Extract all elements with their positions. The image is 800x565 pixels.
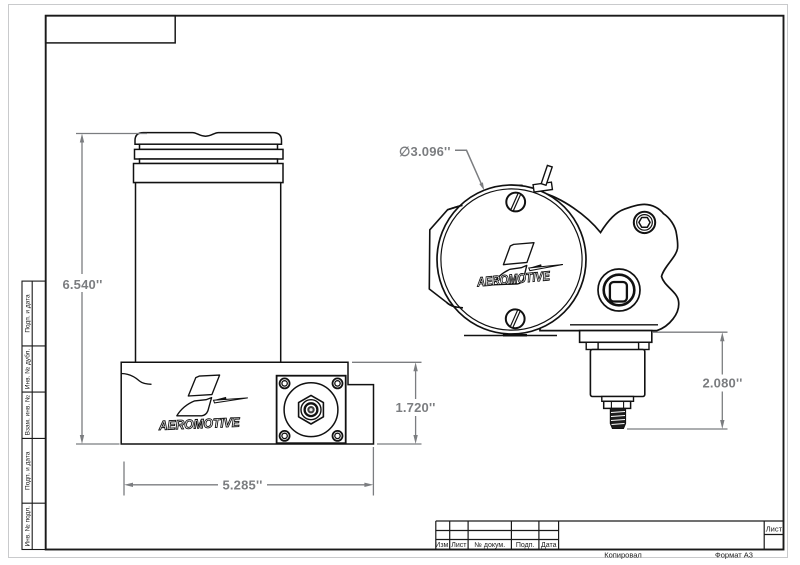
svg-text:Изм.: Изм. — [435, 542, 450, 549]
svg-text:Подп. и дата: Подп. и дата — [25, 451, 32, 490]
svg-text:Взам. инв. №: Взам. инв. № — [25, 395, 32, 435]
svg-text:Подп. и дата: Подп. и дата — [25, 294, 32, 333]
svg-text:№ докум.: № докум. — [474, 542, 505, 549]
svg-text:6.540'': 6.540'' — [62, 277, 102, 292]
svg-text:2.080'': 2.080'' — [702, 376, 742, 391]
svg-text:Инв. № дубл.: Инв. № дубл. — [24, 349, 32, 389]
svg-text:1.720'': 1.720'' — [395, 400, 435, 415]
svg-text:∅3.096'': ∅3.096'' — [399, 144, 451, 159]
svg-text:Лист: Лист — [451, 542, 467, 549]
svg-text:Копировал: Копировал — [604, 551, 642, 560]
svg-text:Лист: Лист — [766, 525, 783, 534]
svg-text:5.285'': 5.285'' — [222, 477, 262, 492]
svg-text:Дата: Дата — [541, 542, 557, 549]
svg-text:Подп.: Подп. — [516, 542, 535, 549]
svg-text:Инв. № подл.: Инв. № подл. — [25, 506, 32, 547]
svg-text:Формат А3: Формат А3 — [715, 551, 753, 560]
